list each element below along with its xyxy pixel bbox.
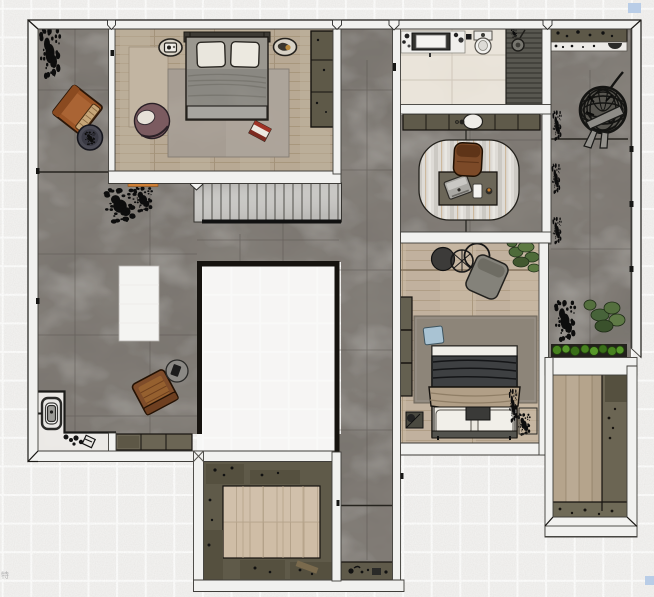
svg-text:特: 特 xyxy=(1,570,9,580)
